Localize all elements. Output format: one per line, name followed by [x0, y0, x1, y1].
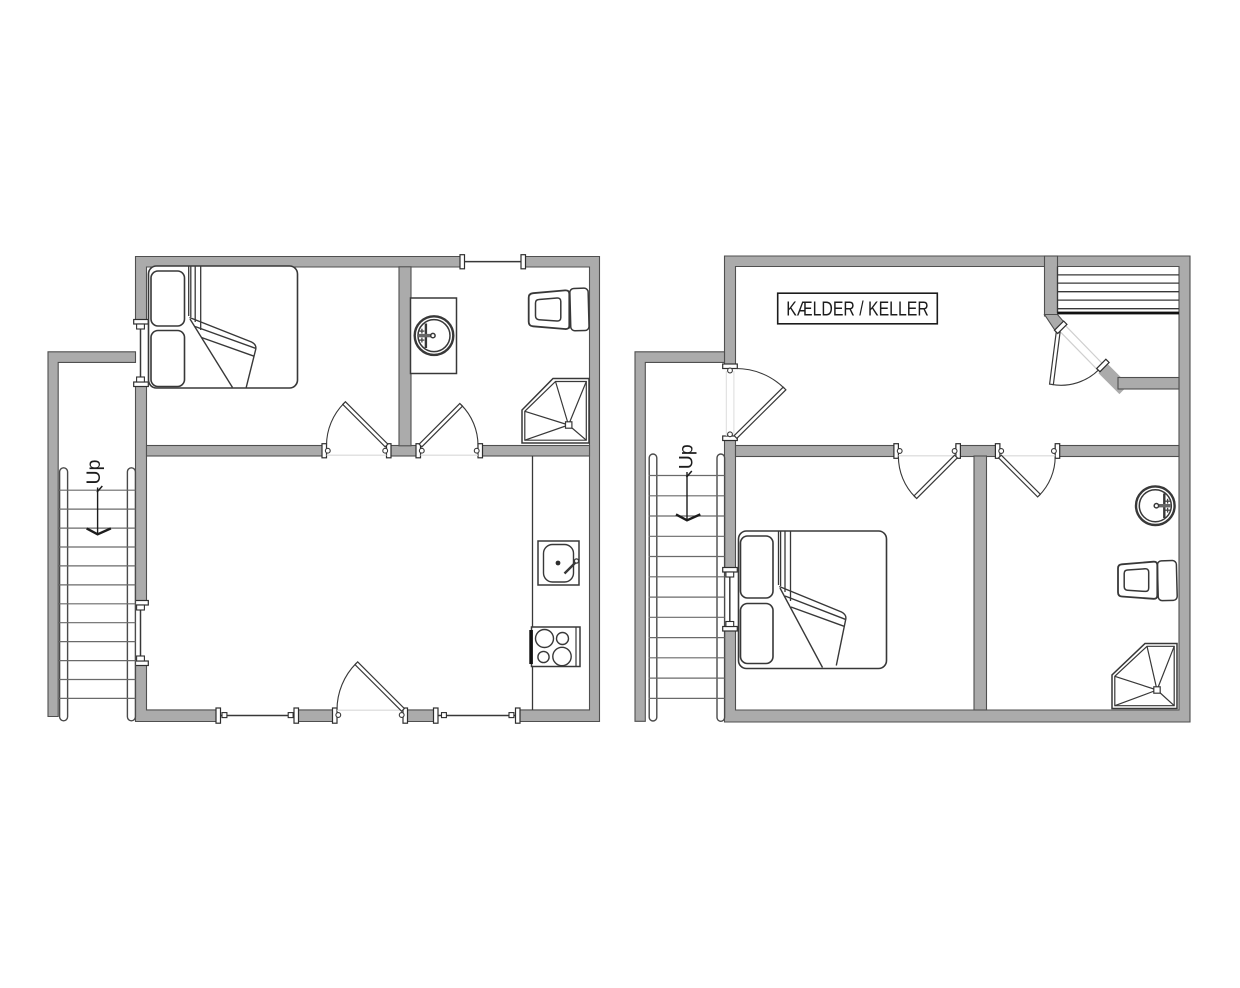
svg-text:Up: Up	[675, 444, 697, 469]
svg-text:Up: Up	[83, 459, 105, 484]
svg-text:KÆLDER / KELLER: KÆLDER / KELLER	[786, 298, 929, 321]
